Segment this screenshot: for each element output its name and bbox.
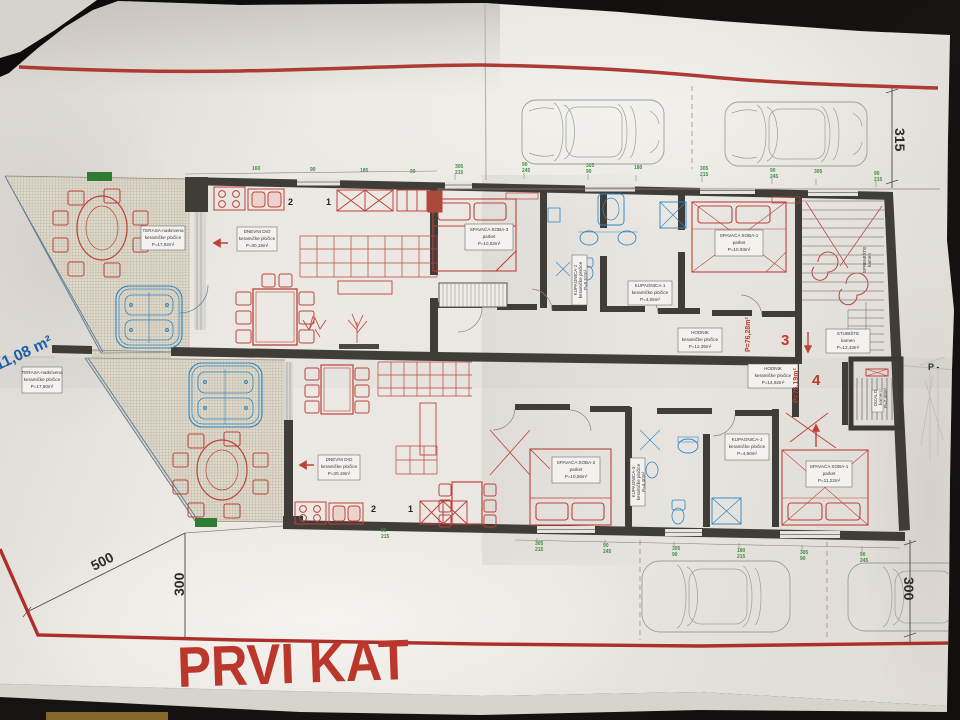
svg-text:P=14,92m²: P=14,92m² xyxy=(762,380,785,385)
svg-text:215: 215 xyxy=(381,534,390,540)
svg-text:SPAVAĆA SOBA-1: SPAVAĆA SOBA-1 xyxy=(720,232,759,238)
svg-text:keramičke pločice: keramičke pločice xyxy=(682,337,719,342)
svg-text:P=4,90m²: P=4,90m² xyxy=(737,451,758,456)
svg-text:P=12,43m²: P=12,43m² xyxy=(837,345,860,350)
svg-text:parket: parket xyxy=(823,471,836,476)
svg-text:P=17,92m²: P=17,92m² xyxy=(152,242,175,247)
svg-text:P=76,19m²: P=76,19m² xyxy=(793,368,800,403)
svg-text:SPAVAĆA SOBA-1: SPAVAĆA SOBA-1 xyxy=(810,463,849,469)
svg-text:KUPAONICA-1: KUPAONICA-1 xyxy=(635,283,666,288)
svg-text:TERASA-natkrivena: TERASA-natkrivena xyxy=(142,228,184,233)
svg-text:245: 245 xyxy=(770,174,779,180)
svg-text:STUBIŠTE: STUBIŠTE xyxy=(837,330,859,336)
svg-text:90: 90 xyxy=(310,167,316,173)
svg-text:SPAVAĆA SOBA-3: SPAVAĆA SOBA-3 xyxy=(470,226,509,232)
svg-text:keramičke pločice: keramičke pločice xyxy=(24,377,61,382)
svg-text:P=10,56m²: P=10,56m² xyxy=(565,474,588,479)
svg-text:keramičke pločice: keramičke pločice xyxy=(145,235,182,240)
svg-text:305: 305 xyxy=(814,169,823,175)
svg-text:PRVI KAT: PRVI KAT xyxy=(176,628,410,700)
svg-text:160: 160 xyxy=(252,166,261,172)
svg-text:P=30,19m²: P=30,19m² xyxy=(246,243,269,248)
svg-text:300: 300 xyxy=(901,577,917,601)
svg-text:P=12,35m²: P=12,35m² xyxy=(689,344,712,349)
svg-text:P=11,22m²: P=11,22m² xyxy=(818,478,841,483)
svg-text:P=10,93m²: P=10,93m² xyxy=(728,247,751,252)
svg-text:KUPAONICA-1: KUPAONICA-1 xyxy=(732,437,763,442)
svg-text:215: 215 xyxy=(874,177,883,183)
svg-text:kamen: kamen xyxy=(841,338,855,343)
svg-text:parket: parket xyxy=(483,234,496,239)
svg-text:HODNIK: HODNIK xyxy=(691,330,710,335)
svg-text:P=17,50m²: P=17,50m² xyxy=(31,384,54,389)
svg-text:TERASA-natkrivena: TERASA-natkrivena xyxy=(21,370,63,375)
svg-text:DNEVNI DIO: DNEVNI DIO xyxy=(244,229,271,234)
svg-text:300: 300 xyxy=(171,572,187,596)
svg-text:kamen: kamen xyxy=(867,253,872,267)
svg-text:keramičke pločice: keramičke pločice xyxy=(632,290,669,295)
svg-text:keramičke pločice: keramičke pločice xyxy=(321,464,358,469)
svg-text:1: 1 xyxy=(408,504,413,514)
svg-text:SPAVAĆA SOBA-2: SPAVAĆA SOBA-2 xyxy=(557,459,596,465)
svg-text:parket: parket xyxy=(570,467,583,472)
svg-text:2: 2 xyxy=(288,197,293,207)
svg-text:P=10,52m²: P=10,52m² xyxy=(478,241,501,246)
svg-text:P -: P - xyxy=(928,362,939,372)
svg-text:4: 4 xyxy=(812,372,821,389)
svg-text:185: 185 xyxy=(360,168,369,174)
svg-text:keramičke pločice: keramičke pločice xyxy=(239,236,276,241)
svg-text:1: 1 xyxy=(326,197,331,207)
svg-text:parket: parket xyxy=(733,240,746,245)
svg-text:90: 90 xyxy=(586,169,592,175)
svg-text:215: 215 xyxy=(455,170,464,176)
svg-text:P=4,55m²: P=4,55m² xyxy=(640,297,661,302)
svg-text:90: 90 xyxy=(672,552,678,558)
svg-text:215: 215 xyxy=(700,172,709,178)
svg-text:215: 215 xyxy=(535,547,544,553)
svg-text:P=30,19m²: P=30,19m² xyxy=(328,471,351,476)
svg-text:315: 315 xyxy=(892,128,908,152)
svg-text:180: 180 xyxy=(634,165,643,171)
svg-text:P=76,28m²: P=76,28m² xyxy=(745,317,752,352)
svg-text:2: 2 xyxy=(371,504,376,514)
svg-text:P=5,52m²: P=5,52m² xyxy=(583,270,588,291)
svg-text:215: 215 xyxy=(737,554,746,560)
svg-text:HODNIK: HODNIK xyxy=(764,366,783,371)
svg-text:3: 3 xyxy=(781,332,789,349)
svg-text:90: 90 xyxy=(410,169,416,175)
svg-text:P=4,40m²: P=4,40m² xyxy=(641,472,646,493)
svg-text:245: 245 xyxy=(603,549,612,555)
svg-text:245: 245 xyxy=(522,168,531,174)
svg-text:90: 90 xyxy=(800,556,806,562)
svg-text:keramičke pločice: keramičke pločice xyxy=(729,444,766,449)
svg-text:DNEVNI DIO: DNEVNI DIO xyxy=(326,457,353,462)
svg-text:keramičke pločice: keramičke pločice xyxy=(755,373,792,378)
svg-text:P=2,40m²: P=2,40m² xyxy=(883,388,888,409)
